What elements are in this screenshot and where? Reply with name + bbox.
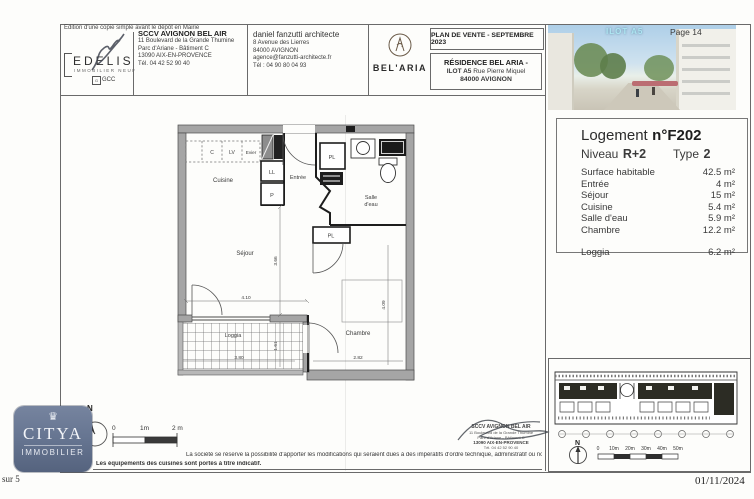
p-label: P [270,193,274,199]
loggia-walls [178,322,303,375]
sejour-row: Séjour 15 m² [581,190,735,202]
loggia-label: Loggia [225,333,242,339]
sejour-row-label: Séjour [581,190,608,202]
salledeau-row-value: 5.9 m² [708,213,735,225]
counter-c-label: C [210,150,214,156]
plan-scale-2m: 2 m [172,425,183,432]
siteplan-drawing: N 0 10m 20m 30m 40m 50m [550,362,747,468]
photo-thumbnail: ILOT A5 Page 14 [548,25,736,110]
entree-row-label: Entrée [581,179,609,191]
promoter-phone: Tél. 04 42 52 90 40 [138,61,244,69]
salledeau-label-2: d'eau [364,202,377,208]
plan-title-box: PLAN DE VENTE - SEPTEMBRE 2023 [430,28,544,50]
photo-flowerbed [632,81,678,86]
residence-city: 84000 AVIGNON [431,76,541,83]
photo-person-1 [636,89,639,97]
chambre-label: Chambre [346,331,371,337]
belaria-monogram-icon [387,32,413,58]
plan-title: PLAN DE VENTE - SEPTEMBRE 2023 [431,32,543,46]
floorplan-drawing: C LV Evier LL P PL [170,115,440,385]
citya-divider [24,445,82,446]
header-cell-divider-3 [368,24,369,95]
architect-email: agence@fanzutti-architecte.fr [253,55,365,63]
toilet-icon [379,158,397,183]
counter-lv-label: LV [229,150,235,156]
duct-boxes [262,135,283,159]
photo-ilot-label: ILOT A5 [606,27,643,36]
entree-dark-box [320,172,343,185]
plan-de-vente-sheet: Edition d'une copie simple avant le dépô… [0,0,754,499]
salledeau-row-label: Salle d'eau [581,213,628,225]
photo-tree-2 [600,53,626,79]
cuisine-label: Cuisine [213,178,234,184]
unit-type-label: Type [673,147,699,161]
dim-chambre-height: 4.09 [381,300,387,310]
architect-address-1: 8 Avenue des Lierres [253,40,365,48]
citya-brand: CITYA [14,424,92,443]
unit-level-value: R+2 [623,147,646,161]
unit-panel: Logement n°F202 Niveau R+2 Type 2 Surfac… [556,118,748,253]
page-number: Page 14 [670,27,702,37]
shower-icon [379,139,406,156]
belaria-logo: BEL'ARIA [372,32,428,73]
surface-row-label: Surface habitable [581,167,655,179]
siteplan-north-icon: N [570,440,587,464]
unit-title-label: Logement [581,127,648,144]
entree-label: Entrée [290,175,306,181]
header-divider [60,95,545,96]
siteplan-scale-30: 30m [641,446,651,452]
unit-number: n°F202 [652,127,701,144]
siteplan-scale-20: 20m [625,446,635,452]
counter-evier-label: Evier [246,150,257,155]
promoter-name: SCCV AVIGNON BEL AIR [138,29,244,38]
chambre-row-value: 12.2 m² [703,225,735,237]
dim-sejour-width: 4.10 [241,295,251,301]
belaria-brand: BEL'ARIA [372,63,428,73]
siteplan-north-label: N [575,440,580,447]
dim-loggia-width: 3.80 [234,355,244,361]
loggia-row: Loggia 6.2 m² [581,247,735,259]
siteplan-scale-bar: 0 10m 20m 30m 40m 50m [597,446,683,459]
surface-row-value: 42.5 m² [703,167,735,179]
edelis-group-box: G [92,76,101,85]
unit-level-label: Niveau [581,147,618,161]
edelis-group: GCC [102,77,115,83]
loggia-row-value: 6.2 m² [708,247,735,259]
document-date: 01/11/2024 [695,475,745,487]
photo-tree-3 [644,55,674,81]
architect-phone: Tél : 04 90 80 04 93 [253,63,365,71]
entry-threshold [346,126,355,132]
ll-label: LL [269,170,275,176]
photo-person-2 [652,87,655,95]
citya-division: IMMOBILIER [14,448,92,457]
plan-scale-1m: 1m [140,425,149,432]
disclaimer-line-2: Les équipements des cuisines sont portés… [96,461,542,467]
pl-entree-label: PL [329,155,336,161]
photo-building-right-windows [682,35,730,95]
washbasin-icon [351,139,375,158]
sheet-of: sur 5 [2,474,20,484]
pl-chambre-label: PL [328,234,335,240]
promoter-block: SCCV AVIGNON BEL AIR 11 Boulevard de la … [138,29,244,68]
sejour-window [192,317,270,320]
photo-road [604,83,680,110]
siteplan-building [555,372,737,438]
bed-outline [342,280,402,322]
entree-row: Entrée 4 m² [581,179,735,191]
disclaimer-rule [93,469,542,470]
siteplan-scale-50: 50m [673,446,683,452]
signature-icon [86,30,136,75]
plan-scale-bar: 0 1m 2 m [112,425,183,447]
promoter-address-3: 13090 AIX-EN-PROVENCE [138,53,244,61]
plan-scale-0: 0 [112,425,116,432]
dim-loggia-height: 1.61 [273,341,279,351]
sejour-row-value: 15 m² [711,190,735,202]
cuisine-row-label: Cuisine [581,202,613,214]
siteplan-scale-0: 0 [597,446,600,452]
residence-box: RÉSIDENCE BEL ARIA - ILOT A5 Rue Pierre … [430,53,542,90]
cuisine-row: Cuisine 5.4 m² [581,202,735,214]
salledeau-row: Salle d'eau 5.9 m² [581,213,735,225]
residence-ilot: ILOT A5 [447,68,472,75]
edelis-bracket-left [64,53,72,77]
unit-type-value: 2 [703,147,710,161]
residence-street: Rue Pierre Miquel [473,68,525,75]
right-column-divider [545,24,546,471]
surface-row: Surface habitable 42.5 m² [581,167,735,179]
entree-row-value: 4 m² [716,179,735,191]
citya-logo: ♛ CITYA IMMOBILIER [14,406,92,472]
residence-name: RÉSIDENCE BEL ARIA - [431,58,541,67]
header-cell-divider-2 [247,24,248,95]
dim-sejour-height: 3.66 [273,256,279,266]
chambre-row-label: Chambre [581,225,620,237]
promoter-address-2: Parc d'Ariane - Bâtiment C [138,46,244,54]
promoter-address-1: 11 Boulevard de la Grande Thumine [138,38,244,46]
entry-opening [283,125,315,133]
stamp-signature-icon [450,408,555,448]
sejour-label: Séjour [236,251,253,257]
dimension-lines [183,205,403,367]
architect-name: daniel fanzutti architecte [253,30,365,39]
cuisine-row-value: 5.4 m² [708,202,735,214]
chambre-row: Chambre 12.2 m² [581,225,735,237]
crown-icon: ♛ [14,410,92,424]
architect-block: daniel fanzutti architecte 8 Avenue des … [253,30,365,70]
siteplan-scale-40: 40m [657,446,667,452]
salledeau-label-1: Salle [365,195,377,201]
dim-chambre-width: 2.82 [353,355,363,361]
photo-building-left [548,33,574,110]
siteplan-scale-10: 10m [609,446,619,452]
architect-address-2: 84000 AVIGNON [253,48,365,56]
loggia-row-label: Loggia [581,247,610,259]
disclaimer-line-1: La société se réserve la possibilité d'a… [186,452,542,458]
